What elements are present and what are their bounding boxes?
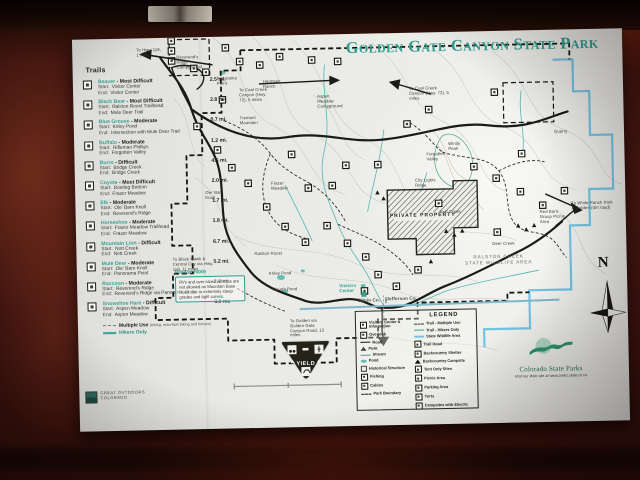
- map-label-quarry: Quarry: [554, 129, 576, 134]
- trail-list-item: 2.5 mi. Beaver - Most Difficult Start: V…: [82, 77, 228, 97]
- tent-only-sites-icon: [415, 366, 422, 373]
- legend-right-column: LEGEND Trail - Multiple Use Trail - Hike…: [414, 311, 476, 406]
- legend-label: Road: [372, 340, 382, 344]
- map-label-slough-pond: Slough Pond: [272, 287, 298, 292]
- legend-label: Picnic Area: [424, 376, 445, 381]
- trail-length: 5.2 mi.: [213, 258, 229, 264]
- goco-logo-icon: [85, 391, 97, 403]
- map-label-city-lights-ridge: City Lights Ridge: [415, 178, 439, 188]
- compass-north-label: N: [598, 261, 609, 266]
- trail-length: 1.7 mi.: [212, 198, 228, 204]
- picnic-area-icon: [415, 375, 422, 382]
- trail-length: 0.7 mi.: [210, 117, 226, 123]
- map-label-to-golden: To Golden via Golden Gate Canyon Road, 1…: [290, 319, 326, 339]
- trail-marker-icon: [83, 80, 92, 89]
- map-label-aspen-meadow: Aspen Meadow Campground: [317, 94, 347, 109]
- hikers-only-line-icon: [103, 332, 116, 334]
- legend-label: Trail - Multiple Use: [426, 321, 460, 326]
- legend-label: Parking Area: [424, 385, 448, 390]
- trail-list-item: 6.7 mi. Mountain Lion - Difficult Start:…: [85, 238, 231, 258]
- legend-label: Tent Only Sites: [424, 366, 452, 371]
- trail-marker-icon: [85, 161, 94, 170]
- trail-marker-icon: [86, 222, 95, 231]
- map-label-deer-creek: Deer Creek: [492, 242, 516, 247]
- trail-length: 2.8 mi.: [210, 97, 226, 103]
- legend-heading: LEGEND: [414, 311, 474, 318]
- legend-label: Stream: [373, 352, 386, 356]
- trail-length: 6.7 mi.: [213, 238, 229, 244]
- trail-length: 4.5 mi.: [211, 157, 227, 163]
- overlook-icon: [360, 331, 367, 338]
- legend-label: Backcountry Shelter: [424, 351, 462, 356]
- legend-label: Overlook: [369, 332, 386, 337]
- map-label-forgotten-valley: Forgotten Valley: [426, 152, 452, 162]
- peak-icon: [360, 347, 366, 351]
- trail-marker-icon: [85, 181, 94, 190]
- legend-label: Yurts: [424, 394, 434, 398]
- map-label-ralston-roost: Ralston Roost: [254, 251, 282, 256]
- legend-label: Campsites with Electric: [425, 403, 469, 408]
- trail-end: End: Nott Creek: [101, 250, 231, 258]
- parking-area-icon: [415, 384, 422, 391]
- map-label-kriley-pond: Kriley Pond: [269, 271, 295, 276]
- please-note-box: Please Note RVs and over-sized vehicles …: [175, 268, 246, 302]
- map-label-jefferson-county: Jefferson Co.: [386, 297, 417, 302]
- trail-length: 2.0 mi.: [212, 178, 228, 184]
- legend-label: Backcountry Campsite: [423, 358, 465, 363]
- map-label-private-property: PRIVATE PROPERTY: [390, 213, 456, 219]
- map-label-gilpin-county: Gilpin Co.: [357, 298, 380, 303]
- trail-list-item: 1.7 mi. Elk - Moderate Start: Ole' Barn …: [84, 198, 230, 218]
- legend-label: State Wildlife Area: [426, 334, 460, 339]
- goco-logo-text: Great Outdoors Colorado: [100, 390, 145, 400]
- map-label-frazer-meadow: Frazer Meadow: [271, 181, 297, 191]
- trail-marker-icon: [85, 201, 94, 210]
- visitors-center-icon: [360, 321, 367, 328]
- trail-marker-icon: [87, 282, 96, 291]
- legend-label: Trail - Hikers Only: [426, 327, 459, 332]
- map-label-tremont-mountain: Tremont Mountain: [240, 116, 268, 126]
- please-note-body: RVs and over-sized vehicles are not allo…: [175, 275, 246, 302]
- trail-end: End: Bridge Creek: [100, 169, 230, 177]
- legend-label: Pond: [369, 359, 379, 363]
- sign-top-frame: [0, 0, 640, 30]
- stream-line-icon: [361, 354, 371, 355]
- great-outdoors-colorado-logo: Great Outdoors Colorado: [85, 390, 145, 403]
- park-map-poster: YIELD To Hwy. 119, 1 mile Reverend's Rid…: [72, 28, 630, 431]
- legend-box: Visitors Center & Information Overlook R…: [355, 308, 479, 411]
- map-label-to-coal-creek-1: To Coal Creek Canyon (Hwy. 72), 5 miles: [239, 88, 275, 103]
- map-label-windy-peak: Windy Peak: [448, 141, 470, 151]
- colorado-state-parks-logo: Colorado State Parks Visit our Web site …: [502, 335, 599, 379]
- metal-bracket: [148, 6, 212, 22]
- trail-length: 2.5 mi.: [210, 77, 226, 83]
- pond-icon: [361, 360, 367, 364]
- trail-multiple-use-line-icon: [414, 323, 424, 324]
- fishing-icon: [361, 374, 368, 381]
- map-label-to-hwy-119: To Hwy. 119, 1 mile: [136, 48, 164, 58]
- cabins-icon: [361, 383, 368, 390]
- trail-list-item: 2.0 mi. Coyote - Most Difficult Start: B…: [84, 177, 230, 197]
- multiple-use-line-icon: [103, 325, 116, 326]
- trail-length: 1.8 mi.: [213, 218, 229, 224]
- trail-list-item: 1.8 mi. Horseshoe - Moderate Start: Fraz…: [85, 218, 231, 238]
- map-label-ralston-creek-swa-line2: STATE WILDLIFE AREA: [461, 260, 537, 266]
- trail-end: End: Forgotten Valley: [99, 149, 229, 157]
- map-label-to-white-ranch: To White Ranch Park & Golden (dirt road): [571, 200, 615, 211]
- trail-marker-icon: [86, 242, 95, 251]
- historical-structure-icon: [361, 365, 367, 371]
- map-label-visitors-center: Visitors Center: [339, 284, 369, 294]
- trail-marker-icon: [84, 121, 93, 130]
- legend-left-column: Visitors Center & Information Overlook R…: [360, 313, 416, 408]
- legend-label: Park Boundary: [373, 391, 401, 396]
- trail-list-item: 0.7 mi. Blue Grouse - Moderate Start: Kr…: [83, 117, 229, 137]
- road-line-icon: [360, 342, 370, 343]
- trail-marker-icon: [84, 141, 93, 150]
- photo-of-park-sign: YIELD To Hwy. 119, 1 mile Reverend's Rid…: [0, 0, 640, 480]
- trail-list-item: 2.8 mi. Black Bear - Most Difficult Star…: [82, 97, 228, 117]
- legend-label: Cabins: [370, 384, 383, 388]
- state-wildlife-area-line-icon: [414, 336, 424, 338]
- csp-swoosh-icon: [527, 335, 573, 360]
- trail-list-item: 4.5 mi. Burro - Difficult Start: Bridge …: [83, 157, 229, 177]
- trail-length: 1.2 mi.: [211, 137, 227, 143]
- trail-marker-icon: [87, 262, 96, 271]
- campsites-with-electric-icon: [416, 402, 423, 409]
- map-label-red-barn: Red Barn Group Picnic Area: [540, 209, 568, 224]
- trail-head-icon: [414, 341, 421, 348]
- backcountry-campsite-icon: [415, 359, 421, 363]
- map-label-to-coal-creek-2: To Coal Creek Canyon (Hwy. 72), 5 miles: [409, 86, 449, 101]
- trail-hikers-only-line-icon: [414, 330, 424, 331]
- legend-label: Peak: [368, 346, 377, 350]
- legend-label: Fishing: [370, 375, 384, 379]
- legend-label: Historical Structure: [369, 366, 405, 371]
- yurts-icon: [415, 393, 422, 400]
- backcountry-shelter-icon: [415, 350, 422, 357]
- trail-marker-icon: [83, 101, 92, 110]
- park-boundary-line-icon: [361, 393, 371, 394]
- trail-marker-icon: [87, 302, 96, 311]
- trail-list-item: 1.2 mi. Buffalo - Moderate Start: Riflem…: [83, 137, 229, 157]
- legend-label: Trail Head: [423, 342, 442, 347]
- legend-label: Visitors Center & Information: [369, 320, 414, 329]
